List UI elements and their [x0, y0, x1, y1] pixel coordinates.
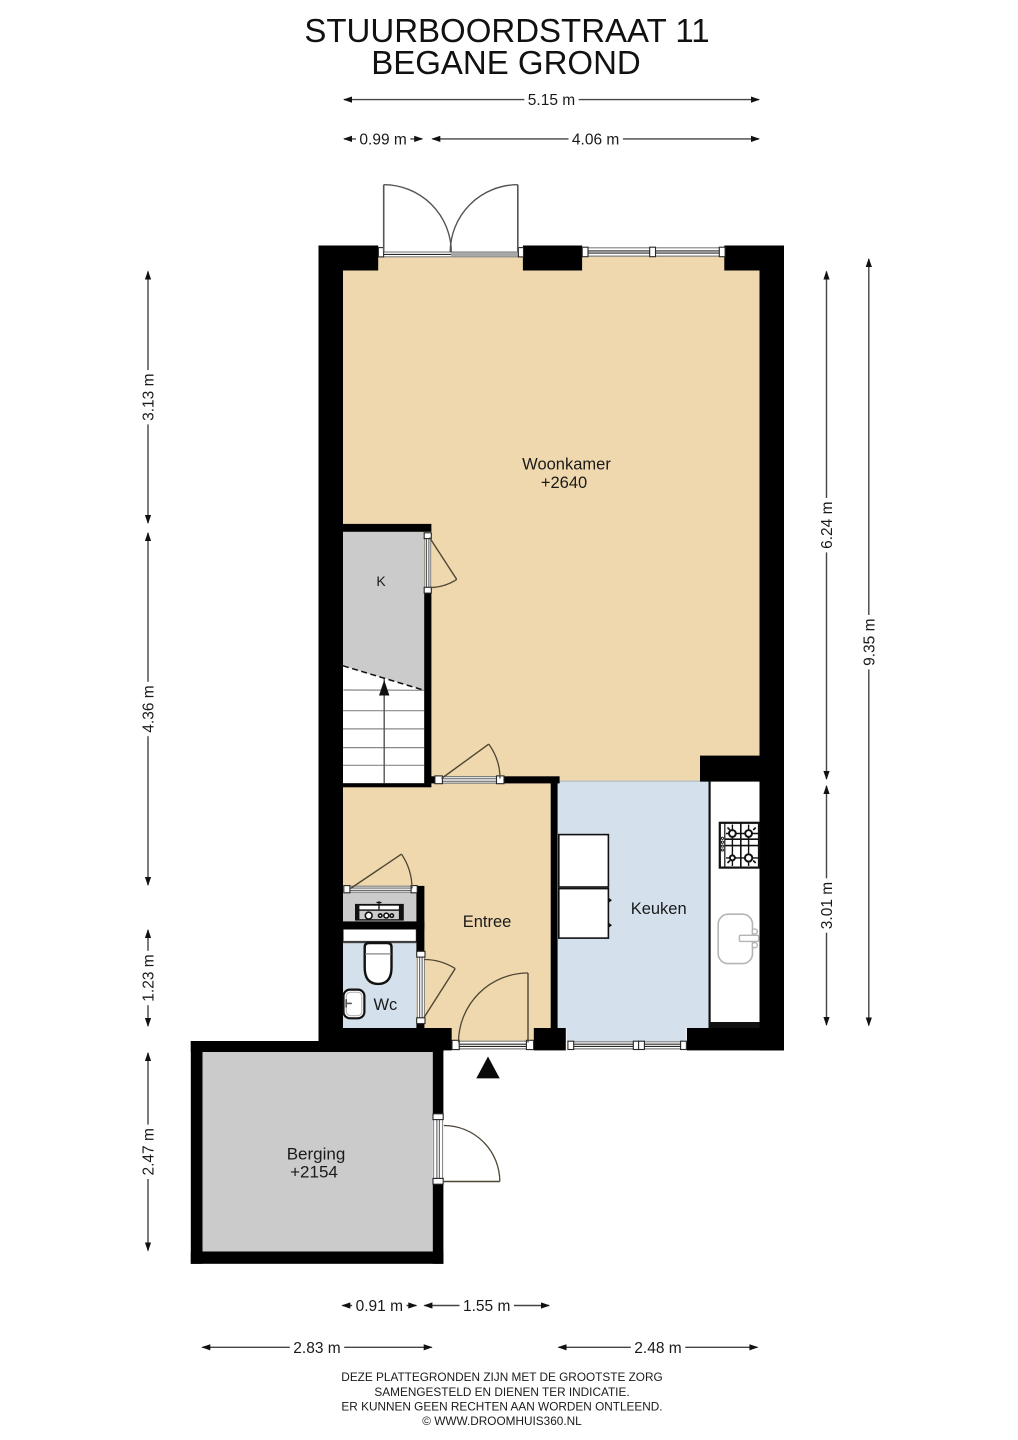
svg-text:4.36 m: 4.36 m: [141, 685, 158, 732]
svg-text:4.06 m: 4.06 m: [572, 131, 619, 148]
svg-text:Wc: Wc: [373, 996, 397, 1014]
svg-text:0.99 m: 0.99 m: [359, 131, 406, 148]
svg-text:1.23 m: 1.23 m: [141, 954, 158, 1001]
svg-text:3.13 m: 3.13 m: [141, 374, 158, 421]
svg-text:2.48 m: 2.48 m: [634, 1340, 681, 1357]
svg-text:1.55 m: 1.55 m: [463, 1298, 510, 1315]
svg-text:9.35 m: 9.35 m: [861, 619, 878, 666]
svg-text:ER KUNNEN GEEN RECHTEN AAN WOR: ER KUNNEN GEEN RECHTEN AAN WORDEN ONTLEE…: [341, 1400, 662, 1414]
svg-text:0.91 m: 0.91 m: [356, 1298, 403, 1315]
svg-text:3.01 m: 3.01 m: [819, 882, 836, 929]
svg-text:Keuken: Keuken: [631, 900, 687, 918]
svg-text:Woonkamer: Woonkamer: [522, 456, 611, 474]
svg-text:Berging: Berging: [287, 1145, 346, 1164]
svg-text:SAMENGESTELD EN DIENEN TER IND: SAMENGESTELD EN DIENEN TER INDICATIE.: [374, 1385, 629, 1399]
svg-text:2.83 m: 2.83 m: [293, 1340, 340, 1357]
svg-text:DEZE PLATTEGRONDEN ZIJN MET DE: DEZE PLATTEGRONDEN ZIJN MET DE GROOTSTE …: [341, 1370, 662, 1384]
svg-text:Entree: Entree: [463, 913, 512, 931]
svg-text:+2154: +2154: [290, 1162, 338, 1181]
svg-text:+2640: +2640: [541, 474, 587, 492]
svg-text:6.24 m: 6.24 m: [819, 502, 836, 549]
svg-text:5.15 m: 5.15 m: [528, 92, 575, 109]
svg-text:2.47 m: 2.47 m: [140, 1128, 157, 1175]
svg-text:BEGANE GROND: BEGANE GROND: [371, 44, 641, 81]
svg-text:© WWW.DROOMHUIS360.NL: © WWW.DROOMHUIS360.NL: [422, 1414, 582, 1428]
svg-text:K: K: [376, 573, 386, 589]
